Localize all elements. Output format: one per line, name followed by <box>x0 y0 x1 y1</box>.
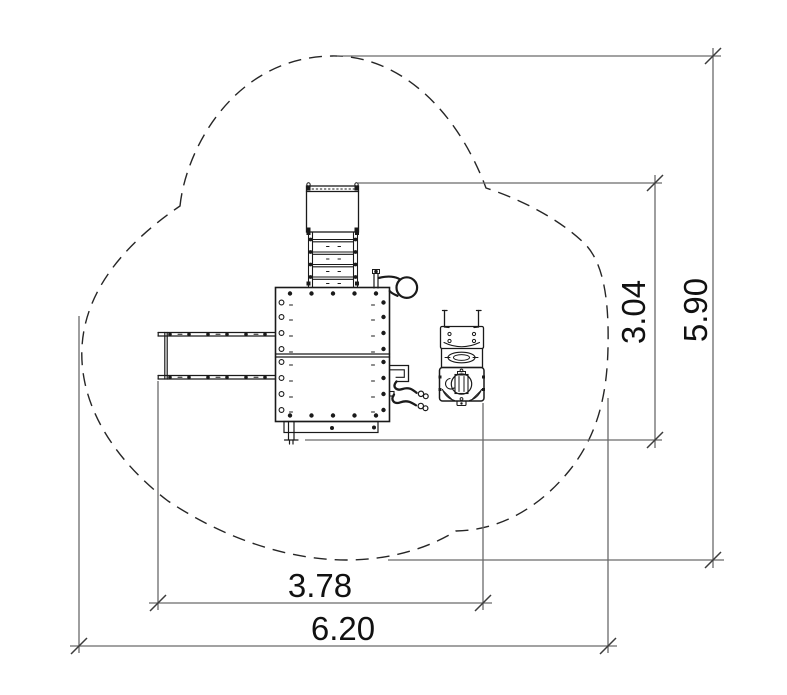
equipment <box>158 183 485 444</box>
dim-label-overall-height: 5.90 <box>677 278 714 342</box>
dimensions <box>70 48 724 653</box>
dimension-overall-height <box>337 48 724 568</box>
main-deck <box>276 288 390 445</box>
dim-label-equipment-width: 3.78 <box>288 567 352 604</box>
access-ladder <box>307 231 360 288</box>
spring-rider <box>439 311 486 406</box>
plan-drawing: 3.78 6.20 3.04 5.90 <box>0 0 787 695</box>
hanging-cables <box>390 366 429 411</box>
dim-label-equipment-height: 3.04 <box>615 280 652 344</box>
top-platform <box>306 183 359 232</box>
dim-label-overall-width: 6.20 <box>311 610 375 647</box>
dimension-ticks <box>71 48 721 654</box>
drawing-canvas: 3.78 6.20 3.04 5.90 <box>0 0 787 695</box>
slide <box>158 333 276 380</box>
